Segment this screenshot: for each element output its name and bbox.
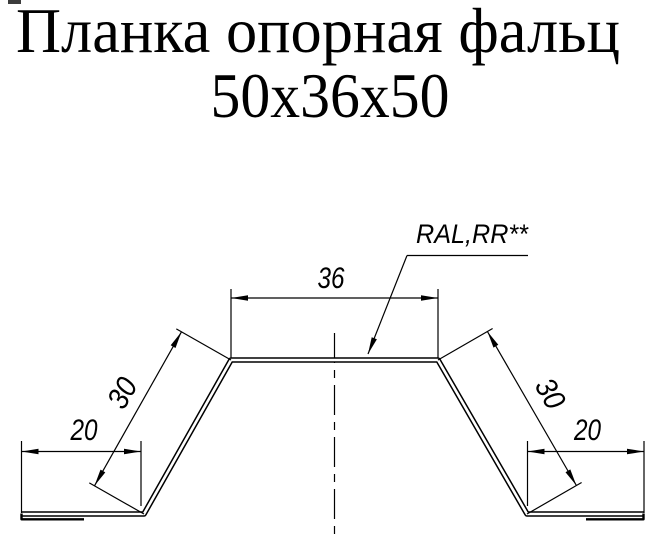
coating-callout: RAL,RR** (368, 219, 529, 354)
dimension-value-36: 36 (318, 262, 345, 295)
arrowhead-icon (171, 332, 182, 348)
arrowhead-icon (124, 449, 141, 455)
dimension-line (95, 332, 182, 486)
dimension-right-flange: 20 (528, 414, 645, 513)
arrowhead-icon (528, 449, 545, 455)
dimension-value-20-right: 20 (573, 414, 601, 447)
arrowhead-icon (566, 469, 577, 485)
extension-line (527, 483, 582, 515)
dimension-value-20-left: 20 (70, 414, 98, 447)
arrowhead-icon (95, 470, 106, 486)
arrowhead-icon (421, 295, 438, 301)
arrowhead-icon (368, 337, 377, 354)
dimension-line (487, 332, 576, 486)
page-title-line2: 50x36x50 (211, 61, 450, 131)
coating-label: RAL,RR** (416, 219, 529, 249)
extension-line (438, 329, 493, 361)
extension-line (176, 329, 231, 360)
dimension-left-flange: 20 (22, 414, 142, 513)
technical-drawing: Планка опорная фальц 50x36x50 36 (0, 0, 648, 540)
arrowhead-icon (231, 295, 248, 301)
arrowhead-icon (22, 449, 39, 455)
drawing-page: Планка опорная фальц 50x36x50 36 (0, 0, 648, 540)
page-title-line1: Планка опорная фальц (16, 0, 620, 66)
arrowhead-icon (487, 332, 498, 348)
extension-line (89, 483, 144, 514)
arrowhead-icon (627, 449, 644, 455)
dimension-value-30-right: 30 (528, 373, 572, 416)
